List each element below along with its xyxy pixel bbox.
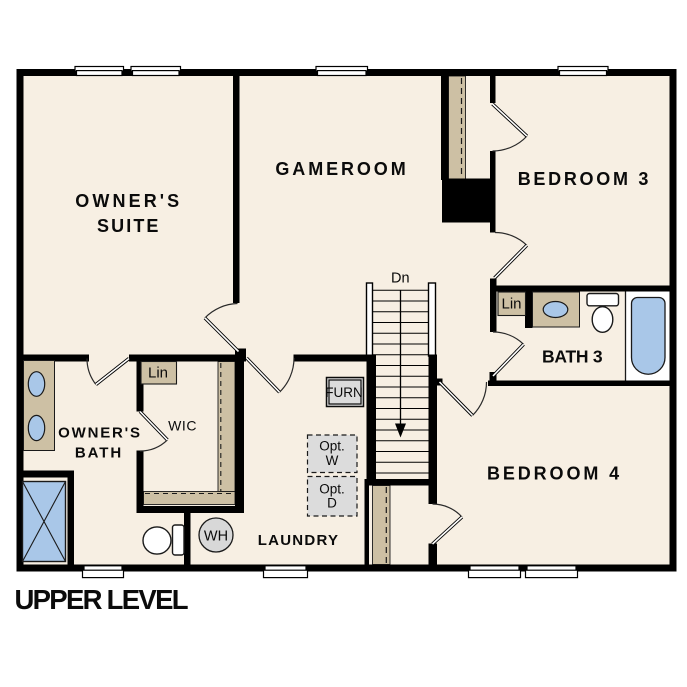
- svg-text:OWNER'S: OWNER'S: [58, 424, 142, 441]
- svg-text:BEDROOM 3: BEDROOM 3: [518, 169, 651, 189]
- svg-text:BEDROOM 4: BEDROOM 4: [487, 464, 622, 484]
- svg-text:Opt.: Opt.: [319, 482, 345, 497]
- svg-text:Dn: Dn: [391, 271, 410, 287]
- svg-text:WH: WH: [204, 529, 228, 545]
- svg-text:SUITE: SUITE: [97, 216, 161, 236]
- svg-text:BATH: BATH: [75, 444, 123, 461]
- svg-text:LAUNDRY: LAUNDRY: [258, 532, 340, 549]
- svg-text:D: D: [327, 496, 337, 511]
- svg-text:WIC: WIC: [168, 417, 197, 433]
- svg-text:Lin: Lin: [148, 365, 168, 382]
- svg-text:Opt.: Opt.: [319, 439, 345, 454]
- svg-text:GAMEROOM: GAMEROOM: [275, 159, 408, 179]
- svg-text:UPPER LEVEL: UPPER LEVEL: [15, 584, 188, 615]
- svg-text:W: W: [326, 453, 339, 468]
- svg-text:Lin: Lin: [501, 296, 521, 313]
- svg-text:FURN: FURN: [325, 385, 363, 400]
- svg-text:OWNER'S: OWNER'S: [75, 191, 182, 211]
- svg-text:BATH 3: BATH 3: [542, 346, 603, 366]
